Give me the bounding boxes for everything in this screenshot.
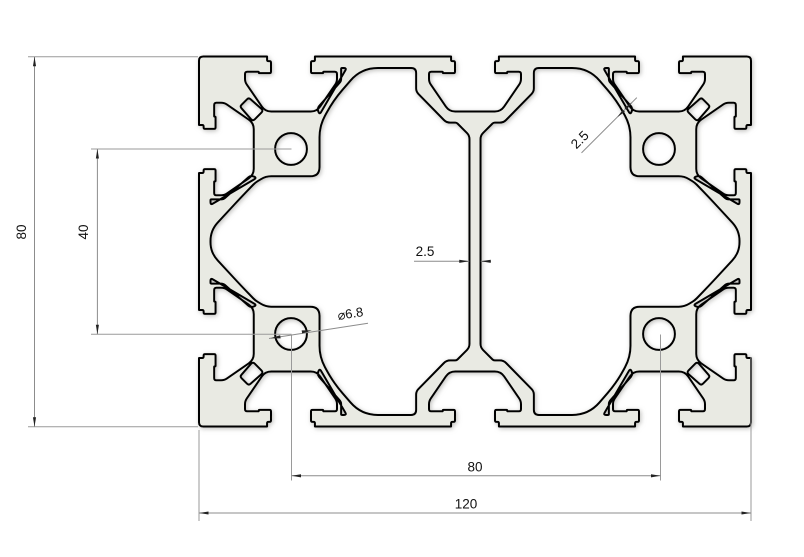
svg-text:80: 80 [467,460,482,475]
svg-text:2.5: 2.5 [416,244,435,259]
svg-text:120: 120 [455,497,478,512]
svg-text:40: 40 [76,224,91,239]
svg-text:80: 80 [14,224,29,239]
